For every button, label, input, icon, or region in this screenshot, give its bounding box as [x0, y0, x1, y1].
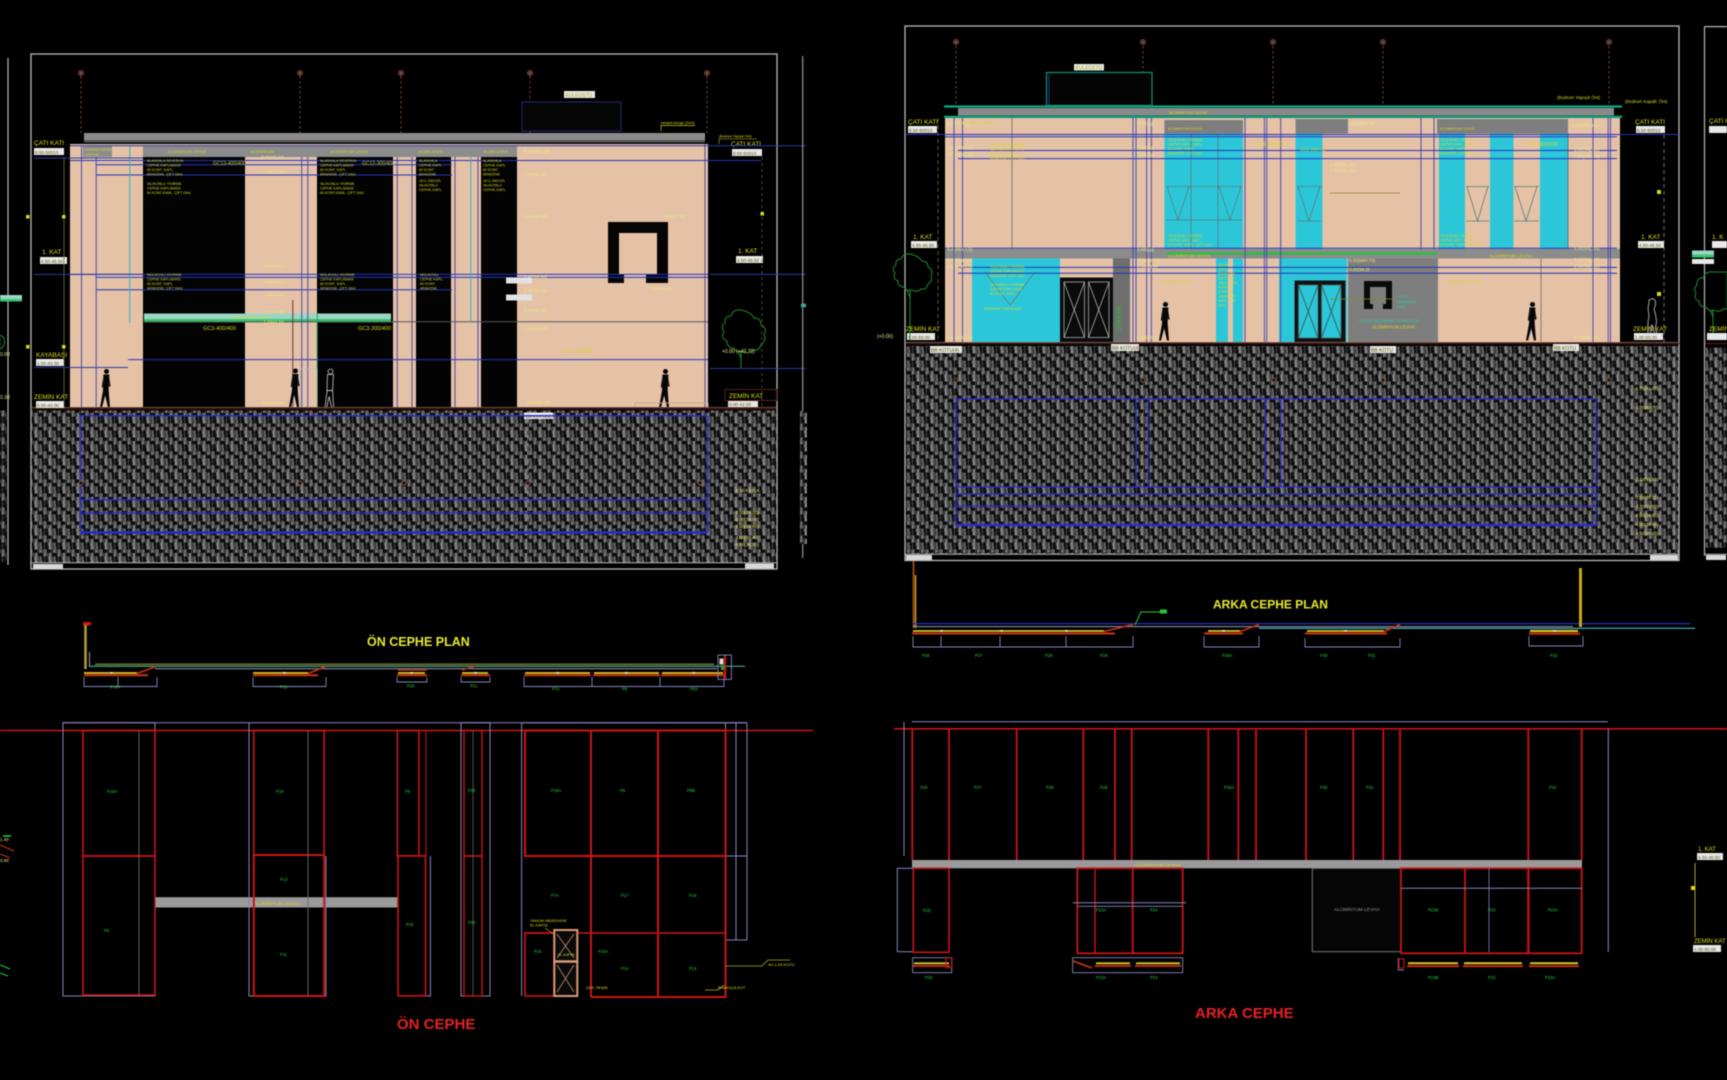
- svg-text:BRAKENE: BRAKENE: [483, 173, 501, 177]
- svg-text:4.50-46.50: 4.50-46.50: [737, 258, 759, 263]
- svg-text:+0.00 (+42.70): +0.00 (+42.70): [722, 349, 755, 355]
- svg-text:1.90(43.40): 1.90(43.40): [264, 292, 285, 297]
- svg-text:P11: P11: [280, 952, 288, 957]
- svg-text:P7A: P7A: [552, 687, 560, 692]
- svg-text:2.40(44.40): 2.40(44.40): [264, 279, 285, 284]
- svg-text:7.60(μg): 7.60(μg): [1137, 145, 1154, 150]
- svg-text:(Bodrum Kapalt: Önt): (Bodrum Kapalt: Önt): [1625, 98, 1668, 104]
- svg-text:P9: P9: [405, 789, 411, 794]
- svg-text:5.40(46.40): 5.40(46.40): [524, 214, 548, 219]
- svg-text:SILIKONLU YİVİRME: SILIKONLU YİVİRME: [320, 181, 355, 186]
- svg-text:ÇATI KATI: ÇATI KATI: [34, 140, 64, 147]
- svg-text:TK: 0.30300: TK: 0.30300: [563, 349, 593, 355]
- svg-text:CEPHE KAPL.: CEPHE KAPL.: [483, 188, 507, 192]
- svg-text:8.00(98L.30): 8.00(98L.30): [1572, 123, 1598, 128]
- svg-text:CEPHE KAPL. KAPL: CEPHE KAPL. KAPL: [1440, 143, 1474, 147]
- svg-text:KAYABAŞI: KAYABAŞI: [36, 352, 67, 359]
- svg-text:P8: P8: [622, 687, 628, 692]
- svg-text:P32: P32: [1550, 653, 1558, 658]
- svg-text:ALÜMİNYUM LEVHA: ALÜMİNYUM LEVHA: [1372, 324, 1415, 330]
- svg-text:ZEMİN: ZEMİN: [1709, 324, 1727, 333]
- svg-text:KULEÜSTÜ: KULEÜSTÜ: [566, 92, 593, 99]
- svg-text:EL.KAPISI: EL.KAPISI: [558, 953, 575, 957]
- svg-text:-4.30(38.40): -4.30(38.40): [1634, 522, 1659, 527]
- svg-text:1.00-50.00: 1.00-50.00: [908, 335, 930, 340]
- svg-text:1. KAT: 1. KAT: [42, 249, 61, 256]
- svg-text:1.00-43.00: 1.00-43.00: [37, 361, 59, 366]
- svg-text:P16A: P16A: [598, 949, 608, 954]
- svg-text:YALIBOBF: YALIBOBF: [1218, 295, 1236, 299]
- svg-text:BRAKENE ÇİFT DAU: BRAKENE ÇİFT DAU: [990, 156, 1025, 161]
- svg-text:BRAKENE. ÇİFT DAU: BRAKENE. ÇİFT DAU: [147, 172, 183, 177]
- svg-text:8.50-50010: 8.50-50010: [909, 128, 933, 133]
- svg-text:8.50-50010: 8.50-50010: [35, 150, 59, 155]
- svg-text:CEPHE KAPLAMASI: CEPHE KAPLAMASI: [147, 164, 181, 168]
- svg-text:(Bodrum Yapışık Önt): (Bodrum Yapışık Önt): [719, 135, 751, 139]
- svg-text:ÖN CEPHE PLAN: ÖN CEPHE PLAN: [367, 634, 470, 649]
- svg-text:ÇELER: ÇELER: [1218, 263, 1230, 267]
- svg-text:MÜLACHLL KİVİRME: MÜLACHLL KİVİRME: [320, 272, 355, 277]
- svg-text:3.00(48.0): 3.00(48.0): [1137, 264, 1158, 269]
- svg-text:7.40(94L.15): 7.40(94L.15): [1330, 168, 1356, 173]
- svg-text:1. KAT: 1. KAT: [913, 234, 932, 241]
- svg-text:2.4 (954.1.5): 2.4 (954.1.5): [947, 258, 973, 263]
- svg-text:3.00(98.0): 3.00(98.0): [1349, 267, 1370, 272]
- svg-text:ALINROF: ALINROF: [1218, 286, 1234, 290]
- svg-text:CEPHE KAPLAMASI: CEPHE KAPLAMASI: [320, 164, 354, 168]
- svg-text:P28: P28: [1045, 653, 1053, 658]
- svg-text:1.00-50.00: 1.00-50.00: [1694, 947, 1716, 952]
- svg-text:P29A: P29A: [1222, 653, 1232, 658]
- svg-text:P23A: P23A: [1096, 975, 1106, 980]
- svg-text:SILIKONLU: SILIKONLU: [419, 184, 438, 188]
- svg-text:P23: P23: [1488, 975, 1496, 980]
- svg-text:ALÜMİNYUM LEVHA: ALÜMİNYUM LEVHA: [168, 149, 207, 154]
- svg-text:-3.90(38.80): -3.90(38.80): [1634, 513, 1659, 518]
- svg-text:ZEMİN KAT: ZEMİN KAT: [1694, 938, 1726, 945]
- svg-text:P23B: P23B: [1428, 908, 1438, 913]
- svg-text:-3.70(39.00): -3.70(39.00): [734, 517, 759, 522]
- svg-text:8.40(+51.10): 8.40(+51.10): [524, 149, 550, 154]
- svg-text:P29: P29: [1100, 785, 1108, 790]
- svg-text:GC1-200 Apt: GC1-200 Apt: [1300, 147, 1327, 152]
- svg-text:BB KOTU: BB KOTU: [1554, 346, 1576, 352]
- svg-text:ÇER. PEŞİN: ÇER. PEŞİN: [586, 985, 608, 990]
- svg-text:CEPHE KAPLAMASI: CEPHE KAPLAMASI: [147, 278, 181, 282]
- svg-text:P16: P16: [534, 949, 542, 954]
- svg-text:60 KONT. KAPL. ÇİFT DAU: 60 KONT. KAPL. ÇİFT DAU: [1168, 242, 1213, 247]
- svg-text:BRAKENE ÇİFT DAU: BRAKENE ÇİFT DAU: [990, 273, 1025, 278]
- svg-text:P30: P30: [1320, 653, 1328, 658]
- svg-text:P20: P20: [468, 788, 476, 793]
- svg-text:P8A: P8A: [690, 687, 698, 692]
- svg-text:BRAKENE. ÇİFT DAU: BRAKENE. ÇİFT DAU: [320, 172, 356, 177]
- svg-text:KAPI: KAPI: [1397, 304, 1406, 309]
- svg-text:P18: P18: [276, 789, 284, 794]
- svg-text:3.60(μg): 3.60(μg): [1137, 247, 1154, 252]
- svg-text:60 KONT. KAPL: 60 KONT. KAPL: [990, 152, 1016, 156]
- svg-text:P17: P17: [621, 893, 629, 898]
- svg-text:2.4 (954.1.5): 2.4 (954.1.5): [947, 264, 973, 269]
- svg-text:2.5 DİŞ MEKANSAL TEMAS İÇİN: 2.5 DİŞ MEKANSAL TEMAS İÇİN: [1359, 318, 1419, 323]
- svg-text:60 KONT. KAPL.: 60 KONT. KAPL.: [990, 292, 1017, 296]
- svg-text:60 KONT. KAPL: 60 KONT. KAPL: [1440, 147, 1466, 151]
- svg-text:TELESKALI YİVİRME: TELESKALI YİVİRME: [990, 264, 1025, 269]
- svg-text:ARAKENE. ÇİFT DAU: ARAKENE. ÇİFT DAU: [320, 286, 356, 291]
- svg-text:3.40(44.40): 3.40(44.40): [649, 286, 673, 291]
- svg-text:3.4 (954.1.5): 3.4 (954.1.5): [947, 247, 973, 252]
- svg-text:BRAKENE: BRAKENE: [419, 173, 437, 177]
- svg-text:BB KOTU(4): BB KOTU(4): [1112, 346, 1140, 352]
- svg-text:CEPHE KAPL.: CEPHE KAPL.: [483, 164, 507, 168]
- svg-text:60 KONT.KAML. ÇİFT DAU: 60 KONT.KAML. ÇİFT DAU: [147, 190, 191, 195]
- svg-text:MÜLACHLL: MÜLACHLL: [420, 273, 439, 277]
- svg-text:SILIKONLU YİVİRME: SILIKONLU YİVİRME: [147, 181, 182, 186]
- svg-text:-4.30(38.40): -4.30(38.40): [734, 535, 759, 540]
- svg-text:ARAKENE: ARAKENE: [420, 287, 438, 291]
- svg-text:1.20(43.80): 1.20(43.80): [524, 326, 548, 331]
- svg-text:SILIKONLU: SILIKONLU: [483, 184, 502, 188]
- svg-text:TELESKALI YİVİRME: TELESKALI YİVİRME: [1168, 137, 1203, 142]
- svg-text:2.40(44.40): 2.40(44.40): [524, 288, 548, 293]
- svg-text:0.00(48.0): 0.00(48.0): [1137, 335, 1158, 340]
- svg-text:0.30: 0.30: [0, 395, 10, 401]
- svg-text:TELESKALI YİVİRME: TELESKALI YİVİRME: [1440, 233, 1475, 238]
- svg-text:YALILOVALI: YALILOVALI: [1218, 281, 1238, 285]
- svg-text:P25: P25: [925, 975, 933, 980]
- svg-text:(+0.00): (+0.00): [877, 334, 893, 340]
- svg-text:ZEMİN KAT: ZEMİN KAT: [34, 392, 68, 401]
- svg-text:CEPHE KAPL KAPL: CEPHE KAPL KAPL: [1440, 239, 1473, 243]
- svg-text:P24: P24: [1150, 975, 1158, 980]
- svg-text:P32: P32: [1549, 785, 1557, 790]
- svg-text:P27: P27: [974, 785, 982, 790]
- svg-text:0.80: 0.80: [0, 858, 9, 863]
- svg-text:BRAKENE ÇİFT DAU: BRAKENE ÇİFT DAU: [1168, 151, 1203, 156]
- svg-text:CEPHE KAPL KAPL: CEPHE KAPL KAPL: [990, 288, 1023, 292]
- svg-text:4.00(94L.15): 4.00(94L.15): [1574, 335, 1600, 340]
- svg-text:1.70(43.70): 1.70(43.70): [524, 308, 548, 313]
- svg-text:P13: P13: [280, 877, 288, 882]
- svg-text:P14: P14: [621, 966, 629, 971]
- svg-text:ALASKALA: ALASKALA: [483, 159, 502, 163]
- svg-text:60 KONT. KAPL.: 60 KONT. KAPL.: [320, 168, 347, 172]
- svg-text:0.00: 0.00: [0, 352, 10, 358]
- svg-text:YANGIN MERDİVENİ: YANGIN MERDİVENİ: [530, 918, 566, 923]
- svg-text:DÜKKAN: DÜKKAN: [1116, 306, 1123, 331]
- svg-text:GC3-300/400: GC3-300/400: [358, 326, 391, 332]
- svg-text:5.20(98H.70): 5.20(98H.70): [1349, 258, 1376, 263]
- svg-text:parapet koruge (2mm): parapet koruge (2mm): [661, 121, 695, 125]
- svg-text:4.50-46.50: 4.50-46.50: [1698, 855, 1720, 860]
- svg-text:P23A: P23A: [1548, 908, 1558, 913]
- svg-text:-3.90(38.80): -3.90(38.80): [734, 524, 759, 529]
- svg-text:-4.50(38.20): -4.50(38.20): [734, 542, 759, 547]
- svg-text:(Bodrum Yapışık Önt): (Bodrum Yapışık Önt): [1557, 94, 1601, 100]
- svg-text:CEPHE KAPL.: CEPHE KAPL.: [420, 278, 444, 282]
- svg-text:ÇATI KATI: ÇATI KATI: [908, 119, 938, 126]
- svg-text:-3.50(39.20): -3.50(39.20): [734, 510, 759, 515]
- svg-text:P20: P20: [407, 684, 415, 689]
- svg-text:P23B: P23B: [1428, 975, 1438, 980]
- svg-text:CEPHE KAPL. KAPL: CEPHE KAPL. KAPL: [990, 148, 1024, 152]
- svg-text:BB KOTU: BB KOTU: [1371, 348, 1393, 354]
- svg-text:GC1-400/400: GC1-400/400: [1527, 142, 1557, 148]
- svg-text:KAPIŞMA YAPIL: KAPIŞMA YAPIL: [1162, 279, 1192, 284]
- svg-text:1.40(94L.15): 1.40(94L.15): [1574, 147, 1600, 152]
- svg-text:7.4 (548.1.5): 7.4 (548.1.5): [947, 145, 973, 150]
- svg-text:1. KAT: 1. KAT: [1698, 847, 1716, 853]
- svg-text:SILIKONLU YİVİRME: SILIKONLU YİVİRME: [990, 282, 1025, 287]
- svg-text:P31: P31: [1368, 653, 1376, 658]
- svg-text:P27: P27: [975, 653, 983, 658]
- svg-text:ALASKALA: ALASKALA: [419, 159, 438, 163]
- svg-text:8.50-50010: 8.50-50010: [733, 151, 757, 156]
- svg-text:ALÜMİNYUM LEVHA: ALÜMİNYUM LEVHA: [330, 149, 369, 154]
- svg-text:CEPHE KAPL.: CEPHE KAPL.: [419, 164, 443, 168]
- svg-text:7.4 (954.1.5): 7.4 (954.1.5): [947, 152, 973, 157]
- svg-text:FIRINKAT DARILMA: FIRINKAT DARILMA: [984, 306, 1021, 311]
- svg-text:60 KONT. KAPL: 60 KONT. KAPL: [1168, 147, 1194, 151]
- svg-text:P19A: P19A: [110, 685, 120, 690]
- svg-text:1. K: 1. K: [1712, 234, 1724, 241]
- svg-text:7.40(μg): 7.40(μg): [1137, 152, 1154, 157]
- svg-text:3.40(44.40): 3.40(44.40): [264, 263, 285, 268]
- svg-text:KAPL. ÇİF: KAPL. ÇİF: [1218, 298, 1236, 303]
- svg-text:P18: P18: [689, 893, 697, 898]
- svg-text:8.00(μg): 8.00(μg): [1137, 121, 1154, 126]
- svg-text:1. KAT: 1. KAT: [738, 248, 757, 255]
- svg-text:ÇATI KATI: ÇATI KATI: [731, 141, 761, 148]
- svg-text:CEPHE KAPL. KAPL: CEPHE KAPL. KAPL: [1168, 143, 1202, 147]
- svg-text:ÇİFT DAU: ÇİFT DAU: [1218, 276, 1235, 281]
- svg-text:CEPHE KAPLAMASI: CEPHE KAPLAMASI: [320, 278, 354, 282]
- svg-text:-0.30(42.10): -0.30(42.10): [526, 400, 551, 405]
- svg-text:1. KAT: 1. KAT: [1641, 234, 1660, 241]
- svg-text:FIRINKAT DARILMA: FIRINKAT DARILMA: [1447, 279, 1484, 284]
- svg-text:8.40(+51.10): 8.40(+51.10): [261, 154, 284, 159]
- svg-text:ALÜMİNYUM LEVHA: ALÜMİNYUM LEVHA: [1169, 110, 1208, 115]
- svg-text:YAPIL: YAPIL: [1218, 268, 1228, 272]
- svg-text:BB KOTU(4): BB KOTU(4): [931, 348, 959, 354]
- svg-text:ÇATI KATI: ÇATI KATI: [1635, 119, 1665, 126]
- svg-text:4.00(47.00): 4.00(47.00): [663, 214, 687, 219]
- svg-text:-2.00(40.70): -2.00(40.70): [1634, 405, 1659, 410]
- svg-text:CEPHE: CEPHE: [85, 152, 99, 157]
- svg-text:P28: P28: [1046, 785, 1054, 790]
- svg-text:60 KONT.KAML. ÇİFT DAU: 60 KONT.KAML. ÇİFT DAU: [320, 190, 364, 195]
- svg-text:3.40(94L.15): 3.40(94L.15): [1574, 246, 1600, 251]
- svg-text:ALÜMİNYUM LEVHA: ALÜMİNYUM LEVHA: [1334, 906, 1381, 913]
- svg-text:ZEMİN KAT: ZEMİN KAT: [729, 391, 763, 400]
- svg-text:7.40(94L.15): 7.40(94L.15): [1574, 154, 1600, 159]
- svg-text:8.0 (50.10): 8.0 (50.10): [947, 121, 969, 126]
- svg-text:P8B: P8B: [687, 788, 695, 793]
- svg-text:ARKA CEPHE: ARKA CEPHE: [1195, 1005, 1294, 1022]
- svg-text:1.40(94L.15): 1.40(94L.15): [1330, 162, 1356, 167]
- svg-text:ALASKALA SEVERHA: ALASKALA SEVERHA: [320, 159, 357, 163]
- svg-text:P18: P18: [280, 685, 288, 690]
- svg-text:P20: P20: [468, 920, 476, 925]
- svg-text:ALÜMİNYUM LEVHA: ALÜMİNYUM LEVHA: [254, 900, 301, 907]
- svg-text:CEPHE KAPL.: CEPHE KAPL.: [419, 188, 443, 192]
- svg-text:GC12-300/400: GC12-300/400: [362, 161, 395, 167]
- svg-text:P19A: P19A: [551, 788, 561, 793]
- svg-text:GC3-400/400: GC3-400/400: [203, 326, 236, 332]
- svg-text:ALÜMİNYUM LEVHA: ALÜMİNYUM LEVHA: [1489, 253, 1532, 259]
- svg-text:60 KONT. KAPL. ÇİFT DAU: 60 KONT. KAPL. ÇİFT DAU: [1440, 242, 1485, 247]
- svg-text:P29A: P29A: [1224, 785, 1234, 790]
- svg-text:TELESKALI YİVİRME: TELESKALI YİVİRME: [1168, 233, 1203, 238]
- svg-text:4.50-46.50: 4.50-46.50: [912, 243, 934, 248]
- svg-text:60 KONT.: 60 KONT.: [483, 168, 499, 172]
- svg-text:0.00-42.00: 0.00-42.00: [37, 403, 59, 408]
- svg-text:ALÜM.LEVHA: ALÜM.LEVHA: [483, 149, 509, 154]
- svg-text:BRAKENE ÇİFT DAU: BRAKENE ÇİFT DAU: [1440, 151, 1475, 156]
- svg-text:P8: P8: [620, 788, 626, 793]
- svg-text:-3.10(39.60): -3.10(39.60): [1634, 477, 1659, 482]
- svg-text:GC1-160/120: GC1-160/120: [483, 179, 505, 183]
- svg-text:ALÜMİNYUM LEVHA: ALÜMİNYUM LEVHA: [1440, 126, 1475, 131]
- svg-text:BRAKENE: BRAKENE: [1218, 272, 1236, 276]
- svg-text:P23A: P23A: [1096, 908, 1106, 913]
- svg-text:P29: P29: [1100, 653, 1108, 658]
- svg-text:P26: P26: [922, 653, 930, 658]
- svg-text:8.00(98H.30): 8.00(98H.30): [1349, 121, 1376, 126]
- svg-text:P23A: P23A: [1545, 975, 1555, 980]
- svg-text:1.00-50.00: 1.00-50.00: [1635, 335, 1657, 340]
- svg-text:P26: P26: [920, 785, 928, 790]
- svg-text:P7A: P7A: [551, 893, 559, 898]
- svg-text:ARAKENE. ÇİFT DAU: ARAKENE. ÇİFT DAU: [147, 286, 183, 291]
- svg-text:2.40(94L.15): 2.40(94L.15): [1574, 264, 1600, 269]
- svg-text:8.50-50010: 8.50-50010: [1637, 128, 1661, 133]
- svg-text:CEPHE KAPLAMASI: CEPHE KAPLAMASI: [990, 270, 1024, 274]
- svg-text:5.20(94L.15): 5.20(94L.15): [1574, 257, 1600, 262]
- svg-text:60 KONT. KAPL.: 60 KONT. KAPL.: [147, 168, 174, 172]
- svg-text:60 KONT.: 60 KONT.: [419, 168, 435, 172]
- svg-text:-4.50(38.20): -4.50(38.20): [1634, 531, 1659, 536]
- svg-text:BHA01ÇA KOT: BHA01ÇA KOT: [718, 985, 746, 990]
- svg-text:ALASKALA SEVERHA: ALASKALA SEVERHA: [147, 159, 184, 163]
- svg-text:P15: P15: [406, 922, 414, 927]
- svg-text:P25: P25: [923, 908, 931, 913]
- svg-text:ALÜMİNYUM LEVHA: ALÜMİNYUM LEVHA: [1168, 253, 1211, 259]
- svg-text:+0.30(43.00): +0.30(43.00): [261, 400, 284, 405]
- svg-text:ALÜM.LEVHA: ALÜM.LEVHA: [418, 149, 444, 154]
- svg-text:1.70(43.70): 1.70(43.70): [264, 309, 285, 314]
- svg-text:4.50-46.50: 4.50-46.50: [41, 259, 63, 264]
- svg-text:TELESKALI YİVİRME: TELESKALI YİVİRME: [1440, 137, 1475, 142]
- svg-text:MÜLACHLL KİVİRME: MÜLACHLL KİVİRME: [147, 272, 182, 277]
- svg-text:P30: P30: [1320, 785, 1328, 790]
- svg-text:CEPHE KAPLAMASI: CEPHE KAPLAMASI: [320, 187, 354, 191]
- svg-text:1.40: 1.40: [0, 837, 9, 842]
- svg-text:7.40(49.40): 7.40(49.40): [524, 172, 548, 177]
- svg-text:P24: P24: [1150, 908, 1158, 913]
- svg-text:60 KONT. KAPL.: 60 KONT. KAPL.: [320, 282, 347, 286]
- svg-text:-1.70(41.00): -1.70(41.00): [1634, 386, 1659, 391]
- svg-text:60 KONT. KAPL.: 60 KONT. KAPL.: [147, 282, 174, 286]
- svg-text:CEPHE KAPL KAPL: CEPHE KAPL KAPL: [1168, 239, 1201, 243]
- svg-text:ALÜMİNYUM LEVHA: ALÜMİNYUM LEVHA: [1168, 126, 1203, 131]
- svg-text:P21: P21: [470, 684, 478, 689]
- svg-text:ÇATI K: ÇATI K: [1709, 118, 1727, 125]
- svg-text:0.00-42.00: 0.00-42.00: [729, 402, 751, 407]
- svg-text:3.00(48.70): 3.00(48.70): [1137, 258, 1161, 263]
- svg-text:EL KAPISI: EL KAPISI: [530, 924, 548, 928]
- svg-text:GC13-400/400: GC13-400/400: [213, 161, 246, 167]
- svg-text:ZEMİN KAT: ZEMİN KAT: [906, 324, 940, 333]
- svg-text:DAU: DAU: [1218, 304, 1226, 308]
- svg-text:4 PROJE: 4 PROJE: [1218, 290, 1234, 294]
- svg-text:-3.10 KAZI K.: -3.10 KAZI K.: [734, 488, 761, 493]
- svg-text:ARKA CEPHE PLAN: ARKA CEPHE PLAN: [1213, 598, 1328, 612]
- svg-text:4.50-46.50: 4.50-46.50: [1639, 243, 1661, 248]
- svg-text:ÖN CEPHE: ÖN CEPHE: [397, 1016, 475, 1033]
- svg-text:P5: P5: [104, 928, 110, 933]
- svg-text:KULEÜSTÜ: KULEÜSTÜ: [1076, 65, 1103, 72]
- svg-text:GC1-150/120: GC1-150/120: [419, 179, 441, 183]
- svg-text:CEPHE KAPLAMASI: CEPHE KAPLAMASI: [147, 187, 181, 191]
- svg-text:60 KONT.: 60 KONT.: [420, 282, 436, 286]
- svg-text:P19A: P19A: [107, 789, 117, 794]
- svg-text:4H-1.05 KOTU: 4H-1.05 KOTU: [768, 962, 795, 967]
- svg-text:ZEMİN KAT: ZEMİN KAT: [1633, 324, 1667, 333]
- svg-text:GC3-300/400: GC3-300/400: [1255, 142, 1285, 148]
- svg-text:TELESKALI YİVİRME: TELESKALI YİVİRME: [990, 142, 1025, 147]
- svg-text:P31: P31: [1366, 785, 1374, 790]
- svg-text:-3.50(39.20): -3.50(39.20): [1634, 495, 1659, 500]
- svg-text:-3.70(39.00): -3.70(39.00): [1634, 504, 1659, 509]
- svg-text:1.20(43.30): 1.20(43.30): [264, 319, 285, 324]
- svg-text:7.40(49.40): 7.40(49.40): [264, 169, 285, 174]
- svg-text:0.4 (954.1.5): 0.4 (954.1.5): [947, 335, 973, 340]
- svg-text:P14: P14: [689, 966, 697, 971]
